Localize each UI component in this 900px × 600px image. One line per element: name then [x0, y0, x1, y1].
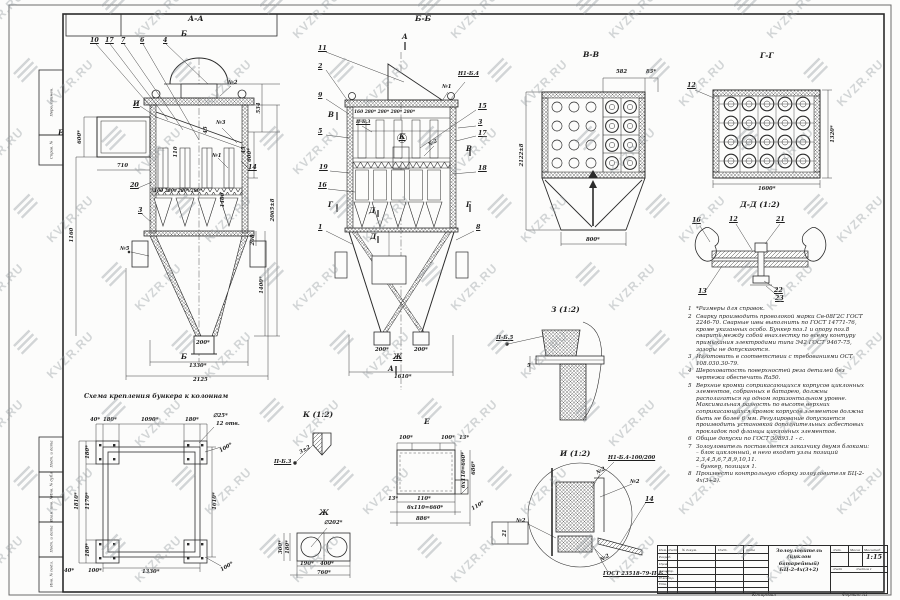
part-ref-dd-23: 23 [775, 295, 784, 302]
scheme-geometry [79, 424, 221, 572]
tb-row-razrab: Разраб. [659, 555, 671, 559]
weld-ref-no2: №2 [228, 80, 237, 86]
note-number: 3 [688, 354, 696, 367]
dim-sch-180t2: 180* [185, 417, 199, 423]
dim-600-right: 600* [247, 148, 253, 162]
view-aa-title: А-А [188, 14, 204, 23]
tb-row-tkontr: Т.контр. [659, 569, 674, 573]
note-number: 8 [688, 471, 696, 484]
dim-sch-1090: 1090* [141, 417, 159, 423]
note-item: 5Верхние кромки соприкасающихся корпусов… [688, 383, 872, 436]
part-ref-7: 7 [121, 37, 125, 44]
dim-sch-holes-dia: ∅25* [213, 413, 228, 419]
dim-e-110b: 110* [417, 496, 431, 502]
section-mark-d2: Д [370, 232, 376, 241]
dim-2065: 2065±8 [270, 199, 276, 222]
dim-zh-400: 400* [320, 561, 334, 567]
stamp-inv-dubl: Инв. № дубл. [49, 471, 54, 497]
note-item: 6Общие допуски по ГОСТ 30893.1 - с. [688, 436, 872, 443]
dim-e-886: 886* [416, 516, 430, 522]
dim-z-5: 5 [527, 363, 531, 369]
weld-ref-no1-bb: №1 [442, 84, 451, 90]
dim-e-686: 686* [471, 461, 477, 475]
part-ref-19: 19 [319, 164, 328, 171]
dim-85: 85* [646, 69, 656, 75]
view-gg-title: Г-Г [760, 51, 774, 60]
dim-e-100a: 100* [399, 435, 413, 441]
title-block: Изм. Лист № докум. Подп. Дата Разраб. Пр… [657, 545, 888, 594]
weld-ref-no3: №3 [216, 120, 225, 126]
note-text: Общие допуски по ГОСТ 30893.1 - с. [696, 436, 872, 443]
section-mark-a-bottom: А [388, 364, 394, 373]
stamp-podp-data-1: Подп. и дата [49, 440, 54, 467]
dim-e-100b: 100* [441, 435, 455, 441]
dim-e-660r: 6х110=660* [461, 452, 467, 488]
part-ref-dd-13: 13 [698, 288, 707, 295]
note-number: 2 [688, 314, 696, 354]
weld-ref-i-no2c: №2 [516, 518, 525, 524]
tb-copied: Копировал [752, 592, 776, 597]
detail-z-title: З (1:2) [551, 305, 580, 314]
dim-200-aa: 200* [196, 340, 210, 346]
detail-k-title: К (1:2) [303, 410, 333, 419]
detail-i-geometry [492, 462, 646, 572]
dim-sch-40b: 40* [64, 568, 74, 574]
detail-e-title: Е [424, 417, 430, 426]
dim-45-a: 45 [203, 126, 209, 133]
note-number: 4 [688, 368, 696, 381]
note-text: Верхние кромки соприкасающихся корпусов … [696, 383, 872, 436]
stamp-sprav-no: Справ. № [49, 141, 54, 159]
section-mark-g-right: Г [466, 200, 471, 209]
dim-1600: 1600* [758, 186, 776, 192]
dim-zh-300: 300* [278, 540, 284, 554]
tb-row [658, 574, 768, 575]
stamp-inv-podl: Инв. № подл. [49, 561, 54, 587]
part-ref-9: 9 [318, 92, 322, 99]
note-item: 3Изготовить в соответствии с требованиям… [688, 354, 872, 367]
detail-e-geometry [390, 443, 470, 526]
view-vv-geometry [526, 78, 658, 246]
note-item: 4Шероховатость поверхностей реза деталей… [688, 368, 872, 381]
tb-row [658, 567, 768, 568]
dim-1400: 1400 [220, 193, 226, 208]
part-ref-3-bb: 3 [478, 119, 482, 126]
part-ref-20: 20 [130, 182, 139, 189]
note-item: 8Произвести контрольную сборку золоулови… [688, 471, 872, 484]
weld-ref-no1: №1 [212, 153, 221, 159]
note-text: Изготовить в соответствии с требованиями… [696, 354, 872, 367]
note-item: 7Золоуловитель поставляется заказчику дв… [688, 444, 872, 470]
note-item: 1*Размеры для справок. [688, 306, 872, 313]
dim-row-bb: 160 280* 280* 280* 280* [354, 110, 415, 115]
view-gg-geometry [695, 90, 832, 188]
section-mark-b-bottom: Б [181, 352, 187, 361]
dim-208: 208 [250, 234, 256, 245]
part-ref-5: 5 [318, 128, 322, 135]
dim-800: 800* [586, 237, 600, 243]
note-number: 5 [688, 383, 696, 436]
tb-col-list: Лист [668, 548, 677, 552]
tb-row-utv: Утв. [659, 582, 667, 586]
detail-dd-geometry [695, 224, 826, 297]
part-ref-dd-16: 16 [692, 217, 701, 224]
section-mark-v-left: В [328, 110, 334, 119]
dim-600-left: 600* [77, 130, 83, 144]
dim-1320: 1320* [830, 125, 836, 143]
dim-sch-1810: 1810* [74, 492, 80, 510]
dim-sch-180t1: 180* [103, 417, 117, 423]
detail-i-title: И (1:2) [560, 449, 590, 458]
section-mark-d1: Д [369, 206, 375, 215]
tb-col-izm: Изм. [659, 548, 667, 552]
part-ref-6: 6 [140, 37, 144, 44]
part-ref-15: 15 [478, 103, 487, 110]
dim-1330: 1330* [189, 363, 207, 369]
dim-200-bb-2: 200* [414, 347, 428, 353]
note-text: Шероховатость поверхностей реза деталей … [696, 368, 872, 381]
tb-col-docnum: № докум. [682, 548, 697, 552]
tb-col-podp: Подп. [718, 548, 728, 552]
dim-1160: 1160 [69, 228, 75, 243]
part-ref-8: 8 [476, 224, 480, 231]
weld-ref-pb3: П-Б.3 [356, 120, 370, 125]
stamp-podp-data-2: Подп. и дата [49, 525, 54, 552]
tb-divider [848, 546, 849, 566]
view-bb-title: Б-Б [415, 14, 431, 23]
stamp-perv-primen: Перв. примен. [49, 87, 54, 116]
part-ref-dd-22: 22 [774, 287, 783, 294]
dim-zh-180: 180* [285, 540, 291, 554]
dim-sch-40t: 40* [90, 417, 100, 423]
part-ref-11: 11 [318, 45, 327, 52]
weld-ref-i-no2b: №2 [630, 479, 639, 485]
part-ref-2: 2 [318, 63, 322, 70]
part-ref-17: 17 [105, 37, 114, 44]
dim-1610: 1610* [394, 374, 412, 380]
view-bb-geometry [326, 42, 476, 390]
part-ref-3: 3 [138, 207, 142, 214]
tb-divider [830, 546, 831, 593]
tb-sheets-label: Листов 1 [856, 567, 872, 571]
tb-scale-label: Масштаб [864, 548, 880, 552]
drawing-linework [0, 0, 900, 600]
tb-row [658, 581, 768, 582]
weld-ref-z-pb5: П-Б.5 [496, 335, 513, 341]
dim-sch-1170: 1170* [85, 492, 91, 510]
part-ref-10: 10 [90, 37, 99, 44]
detail-z-geometry [506, 322, 604, 420]
part-ref-16: 16 [318, 182, 327, 189]
section-mark-b-top: Б [181, 29, 187, 38]
dim-2125: 2125 [193, 377, 208, 383]
note-text: Золоуловитель поставляется заказчику дву… [696, 444, 872, 470]
part-ref-17-bb: 17 [478, 130, 487, 137]
weld-ref-n1b4: Н1-Б.4 [458, 71, 479, 77]
tb-row [658, 560, 768, 561]
dim-zh-190: 190* [300, 561, 314, 567]
dim-200-bb-1: 200* [375, 347, 389, 353]
tb-row [658, 553, 768, 554]
tb-lit-label: Лит. [833, 548, 842, 552]
detail-mark-i: И [133, 99, 140, 108]
part-ref-dd-12: 12 [729, 216, 738, 223]
dim-sch-180l2: 180* [85, 543, 91, 557]
view-aa-geometry [76, 44, 280, 380]
view-vv-title: В-В [583, 50, 599, 59]
tb-col-data: Дата [746, 548, 755, 552]
dim-e-13b: 13* [388, 496, 398, 502]
tb-row [830, 572, 887, 573]
dim-e-660b: 6х110=660* [407, 505, 443, 511]
dim-e-13t: 13* [459, 435, 469, 441]
part-ref-18: 18 [478, 165, 487, 172]
detail-mark-k: К [399, 132, 405, 141]
drawing-sheet: Перв. примен. Справ. № Подп. и дата Инв.… [0, 0, 900, 600]
dim-sch-1330: 1330* [142, 569, 160, 575]
part-ref-12: 12 [687, 82, 696, 89]
tb-scale-value: 1:15 [862, 553, 886, 561]
note-text: Произвести контрольную сборку золоуловит… [696, 471, 872, 484]
dim-1400s: 1400* [259, 276, 265, 294]
part-ref-4: 4 [163, 37, 167, 44]
section-mark-g-left: Г [328, 200, 333, 209]
dim-sch-holes-count: 12 отв. [216, 421, 240, 427]
part-ref-1: 1 [318, 224, 322, 231]
dim-582: 582 [616, 69, 627, 75]
tb-row-nkontr: Н.контр. [659, 576, 674, 580]
detail-mark-zh: Ж [393, 352, 402, 361]
note-number: 6 [688, 436, 696, 443]
part-ref-dd-21: 21 [776, 216, 785, 223]
tb-format: Формат А1 [842, 592, 868, 597]
weld-ref-i-n1b4: Н1-Б.4-100/200 [608, 455, 655, 461]
dim-i-21: 21 [502, 529, 508, 536]
technical-notes: 1*Размеры для справок.2Сварку производит… [688, 306, 872, 485]
dim-110: 110 [173, 146, 179, 157]
dim-row-aa: 160 280* 280* 280* [154, 189, 202, 194]
part-ref-i-14: 14 [645, 496, 654, 503]
tb-mass-label: Масса [850, 548, 860, 552]
scheme-title: Схема крепления бункера к колоннам [84, 392, 228, 400]
note-number: 7 [688, 444, 696, 470]
tb-row [658, 587, 768, 588]
detail-zh-title: Ж [319, 508, 329, 517]
note-number: 1 [688, 306, 696, 313]
detail-mark-e: Е [58, 128, 63, 137]
stamp-vzam-inv: Взам. инв. № [49, 496, 54, 522]
dim-2122: 2122±8 [519, 144, 525, 167]
note-text: Сварку производить проволокой марки Св-0… [696, 314, 872, 354]
tb-sheet-label: Лист [833, 567, 842, 571]
tb-row-prov: Пров. [659, 562, 668, 566]
tb-product-name: Золоуловитель (циклон батарейный) БЦ-2-4… [768, 548, 830, 573]
weld-ref-k-pb3: П-Б.3 [274, 459, 291, 465]
weld-ref-no5: №5 [120, 246, 129, 252]
section-mark-v-right: В [466, 144, 472, 153]
dim-710: 710 [117, 163, 128, 169]
part-ref-14: 14 [248, 164, 257, 171]
detail-dd-title: Д-Д (1:2) [740, 200, 780, 209]
note-text: *Размеры для справок. [696, 306, 872, 313]
dim-sch-100b: 100* [88, 568, 102, 574]
dim-sch-180l1: 180* [85, 445, 91, 459]
note-item: 2Сварку производить проволокой марки Св-… [688, 314, 872, 354]
dim-534: 534 [256, 102, 262, 113]
dim-sch-1610: 1610* [212, 492, 218, 510]
dim-zh-dia: ∅202* [324, 520, 342, 526]
section-mark-a-top: А [402, 32, 408, 41]
dim-zh-760: 760* [317, 570, 331, 576]
